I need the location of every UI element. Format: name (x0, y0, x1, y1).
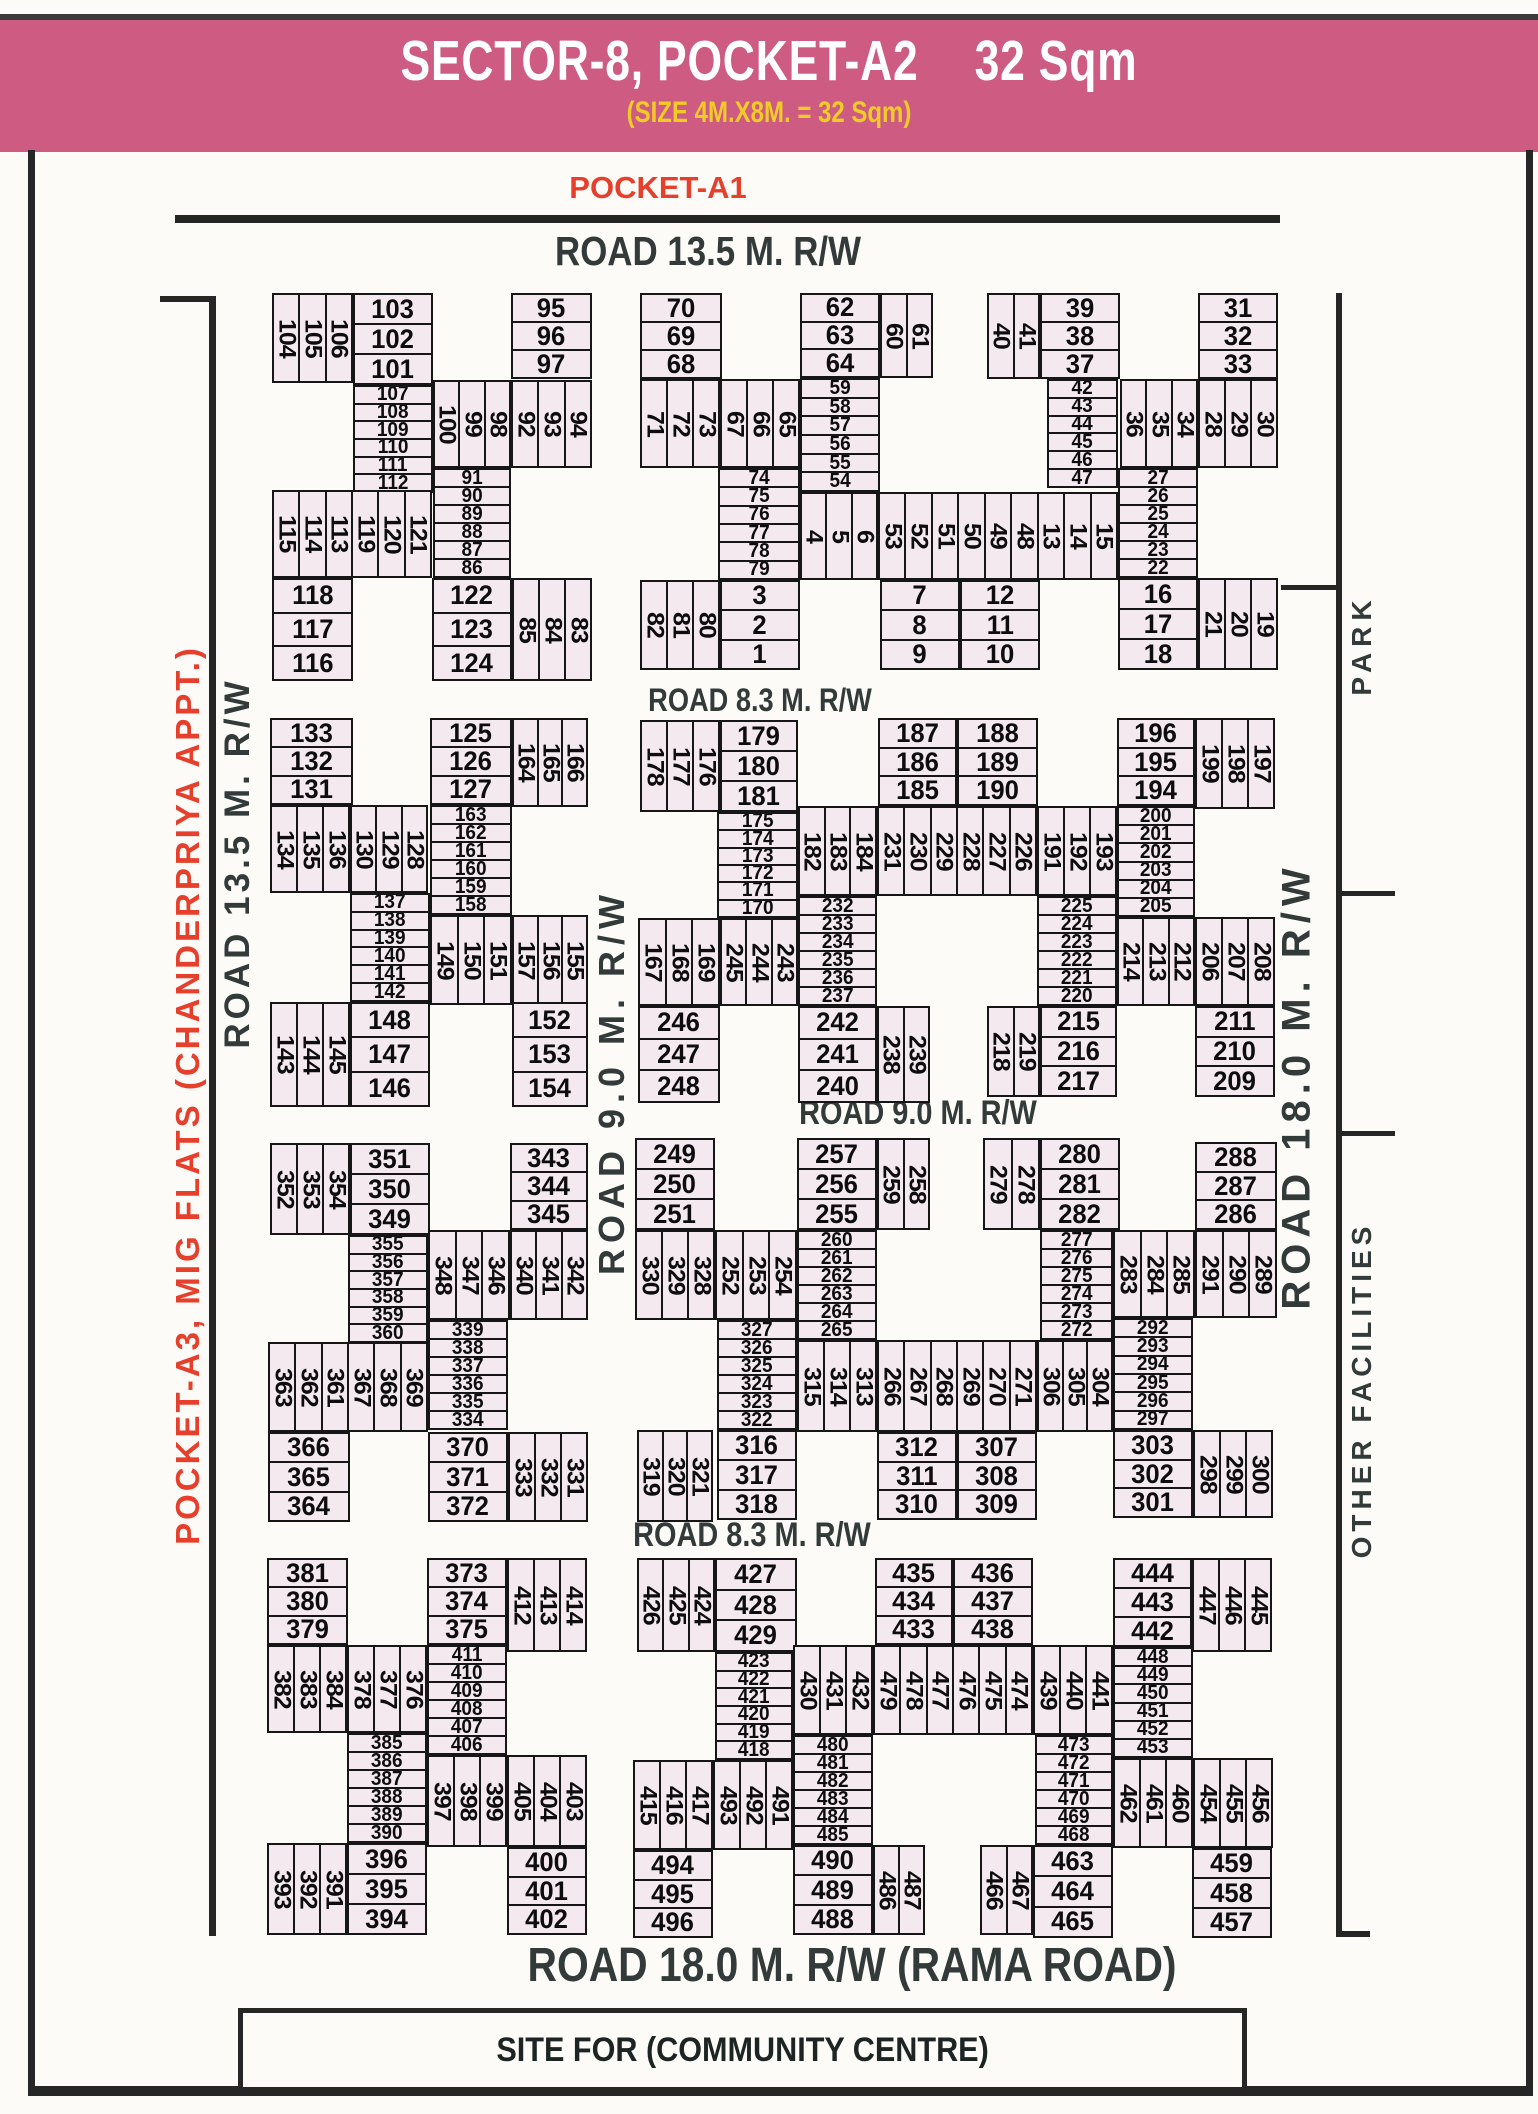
plot-number: 164 (514, 743, 537, 782)
plot-cluster: 466467 (980, 1845, 1033, 1935)
plot-cell: 385 (349, 1735, 425, 1751)
plot-cell: 337 (430, 1356, 506, 1374)
plot-number: 458 (1211, 1878, 1254, 1907)
plot-cell: 237 (800, 986, 875, 1004)
boundary-right-tick-2 (1340, 1131, 1395, 1136)
plot-number: 445 (1244, 1586, 1270, 1625)
plot-cluster: 473472471470469468 (1035, 1735, 1113, 1845)
plot-cell: 17 (1120, 608, 1196, 638)
plot-number: 148 (369, 1005, 412, 1036)
plot-number: 218 (989, 1032, 1013, 1071)
plot-number: 40 (989, 323, 1013, 349)
plot-cluster: 490489488 (793, 1845, 873, 1935)
plot-cell: 259 (879, 1140, 903, 1228)
plot-cluster: 312311310 (877, 1432, 957, 1520)
plot-cluster: 366365364 (268, 1432, 350, 1522)
plot-cell: 305 (1062, 1342, 1087, 1430)
plot-cell: 83 (564, 580, 590, 679)
plot-cell: 28 (1200, 381, 1224, 466)
plot-cell: 123 (434, 612, 510, 646)
plot-number: 276 (1061, 1248, 1093, 1266)
plot-cell: 225 (1039, 898, 1115, 914)
plot-cell: 157 (514, 917, 537, 1003)
plot-cluster: 211210209 (1195, 1006, 1275, 1097)
plot-number: 348 (430, 1256, 455, 1295)
plot-number: 434 (893, 1586, 936, 1614)
plot-number: 356 (372, 1253, 404, 1271)
plot-cell: 39 (1042, 295, 1118, 321)
plot-cluster: 919089888786 (433, 468, 511, 578)
plot-cluster: 313233 (1198, 293, 1278, 379)
plot-cell: 276 (1042, 1248, 1111, 1266)
plot-cell: 13 (1037, 494, 1063, 578)
plot-number: 411 (452, 1647, 483, 1663)
plot-number: 157 (514, 941, 537, 980)
plot-number: 14 (1064, 523, 1090, 549)
plot-cell: 90 (435, 486, 509, 504)
plot-cell: 162 (432, 823, 510, 841)
plot-cell: 442 (1115, 1616, 1190, 1645)
plot-number: 251 (654, 1199, 697, 1229)
plot-cluster: 479478477476475474 (873, 1645, 1033, 1735)
road-18-vertical-label: ROAD 18.0 M. R/W (1275, 862, 1320, 1309)
plot-number: 373 (446, 1560, 489, 1586)
plot-number: 406 (451, 1735, 483, 1753)
plot-cell: 135 (296, 807, 322, 891)
plot-cell: 423 (717, 1654, 791, 1670)
plot-cell: 266 (879, 1342, 903, 1430)
plot-number: 234 (822, 932, 854, 950)
plot-number: 294 (1137, 1355, 1169, 1373)
plot-cell: 21 (1200, 580, 1224, 668)
boundary-top-line (175, 215, 1280, 223)
plot-number: 477 (926, 1671, 952, 1710)
plot-cell: 323 (719, 1392, 795, 1410)
plot-cell: 471 (1037, 1771, 1111, 1789)
plot-number: 324 (741, 1374, 773, 1392)
plot-cell: 81 (666, 582, 692, 668)
plot-number: 170 (742, 899, 774, 916)
plot-number: 4 (802, 530, 825, 543)
plot-number: 217 (1057, 1066, 1100, 1095)
plot-cell: 408 (429, 1699, 505, 1717)
plot-cell: 251 (637, 1198, 713, 1228)
plot-cell: 98 (484, 382, 509, 466)
plot-cell: 318 (719, 1489, 795, 1518)
plot-cell: 34 (1171, 381, 1196, 466)
plot-cell: 99 (458, 382, 483, 466)
page-frame-left (28, 150, 35, 2096)
plot-cell: 488 (795, 1904, 871, 1933)
plot-number: 281 (1059, 1169, 1102, 1199)
plot-number: 86 (461, 558, 482, 576)
plot-cell: 375 (429, 1615, 505, 1643)
road-13-5-left-label: ROAD 13.5 M. R/W (218, 677, 258, 1048)
plot-number: 467 (1006, 1871, 1032, 1910)
plot-number: 387 (371, 1769, 403, 1787)
plot-number: 462 (1115, 1784, 1139, 1823)
plot-number: 187 (896, 720, 939, 747)
plot-cell: 407 (429, 1717, 505, 1735)
plot-cell: 221 (1039, 968, 1115, 986)
plot-number: 487 (898, 1871, 923, 1910)
plot-cell: 436 (955, 1560, 1031, 1586)
plot-number: 401 (526, 1876, 569, 1905)
plot-cell: 136 (322, 807, 348, 891)
plot-cell: 300 (1245, 1432, 1271, 1516)
road-13-5-top-header: ROAD 13.5 M. R/W (528, 228, 888, 275)
plot-cell: 165 (537, 720, 562, 805)
plot-cell: 371 (430, 1461, 506, 1490)
plot-number: 400 (526, 1849, 569, 1876)
plot-number: 321 (686, 1457, 711, 1496)
plot-cluster: 423422421420419418 (715, 1652, 793, 1760)
plot-number: 475 (979, 1671, 1005, 1710)
plot-cell: 177 (666, 722, 692, 810)
plot-number: 159 (455, 877, 487, 895)
plot-cell: 79 (720, 560, 798, 578)
plot-cell: 365 (270, 1461, 348, 1490)
plot-cell: 232 (800, 898, 875, 914)
plot-cell: 477 (926, 1647, 952, 1733)
plot-cluster: 279278 (983, 1138, 1040, 1230)
plot-cell: 273 (1042, 1302, 1111, 1320)
plot-number: 178 (642, 747, 666, 786)
plot-number: 73 (692, 411, 718, 437)
plot-number: 78 (748, 541, 769, 559)
plot-cell: 324 (719, 1374, 795, 1392)
plot-number: 130 (352, 830, 375, 869)
plot-cell: 85 (514, 580, 538, 679)
plot-number: 107 (377, 387, 409, 403)
plot-cell: 413 (533, 1560, 559, 1650)
plot-number: 206 (1197, 942, 1221, 981)
plot-cell: 257 (799, 1140, 875, 1168)
plot-number: 216 (1057, 1036, 1100, 1065)
plot-number: 459 (1211, 1850, 1254, 1877)
plot-number: 338 (452, 1338, 484, 1356)
plot-number: 394 (366, 1904, 409, 1934)
plot-cell: 243 (771, 920, 796, 1004)
plot-cell: 313 (849, 1342, 875, 1430)
plot-cell: 343 (512, 1145, 586, 1171)
plot-number: 219 (1013, 1032, 1039, 1071)
plot-cell: 389 (349, 1805, 425, 1823)
plot-number: 113 (325, 515, 351, 552)
plot-number: 359 (372, 1306, 404, 1324)
plot-cell: 429 (717, 1619, 795, 1650)
plot-cell: 43 (1049, 397, 1116, 415)
plot-cell: 373 (429, 1560, 505, 1586)
boundary-right-tick-1 (1340, 891, 1395, 896)
plot-cell: 168 (665, 920, 692, 1004)
plot-cell: 73 (692, 381, 718, 466)
plot-cell: 107 (355, 387, 431, 403)
plot-cell: 332 (534, 1434, 560, 1520)
plot-cluster: 161718 (1118, 578, 1198, 670)
plot-cell: 271 (1009, 1342, 1035, 1430)
plot-cluster: 411410409408407406 (427, 1645, 507, 1755)
plot-number: 198 (1221, 744, 1247, 783)
plot-cluster: 277276275274273272 (1040, 1230, 1113, 1340)
plot-number: 383 (293, 1670, 319, 1709)
plot-number: 192 (1063, 832, 1089, 871)
plot-number: 365 (288, 1462, 331, 1491)
plot-cell: 108 (355, 403, 431, 421)
plot-cell: 170 (719, 899, 796, 916)
plot-cell: 421 (717, 1687, 791, 1705)
plot-cluster: 182183184 (798, 806, 877, 896)
plot-cell: 89 (435, 504, 509, 522)
plot-number: 23 (1147, 540, 1168, 558)
plot-cluster: 929394 (511, 380, 592, 468)
plot-cell: 414 (559, 1560, 585, 1650)
plot-number: 454 (1195, 1784, 1219, 1823)
plot-cluster: 430431432 (793, 1645, 873, 1735)
plot-cell: 388 (349, 1787, 425, 1805)
plot-cell: 490 (795, 1847, 871, 1874)
plot-cluster: 858483 (512, 578, 592, 681)
plot-number: 382 (269, 1670, 293, 1709)
plot-number: 245 (722, 943, 745, 982)
plot-cell: 48 (1010, 494, 1036, 578)
plot-cell: 352 (272, 1145, 296, 1233)
plot-number: 323 (741, 1392, 773, 1410)
plot-number: 317 (736, 1460, 779, 1489)
plot-cluster: 196195194 (1117, 718, 1195, 806)
plot-number: 421 (738, 1687, 770, 1705)
plot-cell: 333 (510, 1434, 534, 1520)
plot-cell: 100 (435, 382, 458, 466)
plot-cell: 261 (799, 1248, 875, 1266)
boundary-right-bottom-tick (1336, 1931, 1370, 1937)
plot-cell: 438 (955, 1615, 1031, 1643)
plot-number: 195 (1135, 747, 1178, 776)
plot-number: 450 (1137, 1683, 1169, 1701)
plot-number: 1 (753, 639, 767, 668)
plot-cell: 236 (800, 968, 875, 986)
plot-cell: 140 (352, 946, 428, 964)
plot-number: 368 (374, 1368, 400, 1407)
plot-cluster: 118117116 (272, 578, 353, 681)
plot-cluster: 187186185 (878, 718, 957, 806)
plot-number: 122 (451, 580, 494, 611)
plot-number: 436 (972, 1560, 1015, 1586)
plot-number: 42 (1072, 381, 1093, 397)
plot-cell: 292 (1115, 1320, 1191, 1336)
plot-number: 302 (1132, 1459, 1175, 1488)
plot-cell: 219 (1013, 1008, 1039, 1095)
plot-number: 92 (513, 411, 537, 437)
plot-number: 133 (290, 720, 333, 746)
plot-cell: 399 (479, 1757, 505, 1845)
plot-number: 100 (435, 405, 458, 444)
plot-cell: 104 (274, 295, 298, 381)
plot-cell: 141 (352, 964, 428, 982)
plot-number: 379 (286, 1615, 329, 1643)
plot-cell: 330 (637, 1232, 661, 1318)
plot-cell: 362 (294, 1344, 320, 1430)
plot-number: 478 (900, 1671, 926, 1710)
plot-number: 343 (528, 1145, 571, 1171)
plot-number: 342 (561, 1256, 586, 1295)
plot-number: 150 (457, 941, 483, 980)
plot-cluster: 199198197 (1195, 718, 1275, 809)
plot-cluster: 676665 (720, 379, 800, 468)
plot-cell: 67 (722, 381, 746, 466)
plot-cell: 356 (350, 1253, 426, 1271)
plot-number: 391 (319, 1870, 345, 1909)
plot-cell: 54 (802, 471, 878, 490)
plot-cell: 36 (1122, 381, 1145, 466)
page-frame-right (1526, 150, 1533, 2096)
plot-cell: 181 (722, 780, 796, 810)
plot-number: 244 (745, 943, 770, 982)
plot-cell: 164 (514, 720, 537, 805)
plot-number: 93 (538, 411, 564, 437)
plot-cell: 312 (879, 1434, 955, 1461)
plot-cell: 462 (1115, 1760, 1139, 1846)
plot-cell: 307 (959, 1434, 1035, 1461)
plot-number: 152 (529, 1005, 572, 1036)
plot-number: 371 (447, 1462, 490, 1491)
plot-number: 64 (826, 348, 855, 376)
plot-number: 235 (822, 950, 854, 968)
plot-cell: 391 (319, 1845, 345, 1933)
plot-cell: 377 (373, 1647, 399, 1731)
plot-number: 490 (812, 1847, 855, 1874)
plot-cell: 58 (802, 397, 878, 416)
plot-cell: 158 (432, 895, 510, 913)
plot-cell: 55 (802, 453, 878, 472)
plot-number: 357 (372, 1270, 404, 1288)
plot-cluster: 215216217 (1040, 1006, 1117, 1097)
plot-number: 444 (1131, 1560, 1174, 1587)
plot-cell: 467 (1006, 1847, 1032, 1933)
plot-number: 137 (374, 895, 406, 911)
plot-number: 222 (1061, 950, 1093, 968)
plot-cell: 368 (373, 1344, 399, 1430)
plot-number: 291 (1197, 1255, 1222, 1294)
plot-number: 410 (451, 1663, 483, 1681)
plot-number: 480 (817, 1737, 849, 1753)
plot-number: 380 (286, 1586, 329, 1614)
plot-number: 82 (642, 612, 666, 638)
plot-cell: 133 (272, 720, 351, 746)
plot-number: 46 (1072, 450, 1093, 468)
plot-number: 339 (452, 1322, 484, 1338)
plot-number: 273 (1061, 1302, 1093, 1320)
plot-cluster: 493492491 (713, 1760, 793, 1850)
plot-number: 80 (692, 612, 718, 638)
plot-number: 10 (986, 639, 1015, 668)
plot-cell: 256 (799, 1168, 875, 1198)
plot-cell: 101 (355, 353, 431, 383)
plot-cell: 425 (662, 1560, 687, 1650)
plot-cell: 96 (513, 321, 590, 349)
plot-cell: 492 (739, 1762, 765, 1848)
plot-number: 315 (799, 1367, 823, 1406)
plot-number: 438 (972, 1615, 1015, 1643)
plot-cluster: 348347346 (428, 1230, 510, 1320)
plot-number: 424 (688, 1586, 713, 1625)
plot-cell: 2 (722, 609, 798, 638)
plot-cluster: 212019 (1198, 578, 1278, 670)
plot-number: 308 (976, 1461, 1019, 1490)
plot-cell: 411 (429, 1647, 505, 1663)
plot-number: 280 (1059, 1140, 1102, 1168)
plot-number: 377 (373, 1670, 399, 1709)
plot-cluster: 319320321 (637, 1430, 713, 1522)
plot-cell: 8 (882, 609, 958, 638)
plot-cell: 284 (1140, 1232, 1167, 1316)
plot-number: 65 (772, 411, 798, 437)
plot-number: 405 (509, 1782, 533, 1821)
plot-number: 17 (1144, 609, 1173, 639)
area-label: 32 Sqm (975, 29, 1138, 93)
plot-cell: 178 (642, 722, 666, 810)
plot-cell: 126 (432, 746, 510, 774)
plot-cell: 216 (1042, 1036, 1115, 1066)
plot-cluster: 232233234235236237 (798, 896, 877, 1006)
plot-cluster: 444443442 (1113, 1558, 1192, 1647)
plot-cluster: 327326325324323322 (717, 1320, 797, 1430)
plot-number: 419 (738, 1723, 770, 1741)
plot-cell: 424 (688, 1560, 713, 1650)
plot-number: 346 (482, 1256, 508, 1295)
plot-number: 110 (378, 438, 409, 456)
plot-number: 397 (429, 1782, 453, 1821)
plot-number: 177 (666, 747, 692, 786)
plot-number: 5 (825, 530, 850, 543)
plot-number: 114 (299, 515, 325, 552)
plot-cell: 169 (691, 920, 718, 1004)
plot-cell: 306 (1039, 1342, 1062, 1430)
plot-cell: 156 (537, 917, 562, 1003)
plot-number: 227 (983, 832, 1009, 871)
plot-cell: 230 (903, 808, 929, 894)
plot-cell: 87 (435, 540, 509, 558)
plot-number: 248 (658, 1071, 701, 1101)
plot-cell: 115 (274, 492, 298, 576)
plot-cell: 461 (1139, 1760, 1165, 1846)
plot-number: 215 (1057, 1008, 1100, 1036)
plot-number: 292 (1137, 1320, 1169, 1336)
road-rama-header: ROAD 18.0 M. R/W (RAMA ROAD) (470, 1938, 1234, 1993)
plot-cluster: 447446445 (1192, 1558, 1272, 1652)
plot-number: 213 (1142, 942, 1167, 981)
plot-cell: 202 (1119, 842, 1193, 860)
plot-number: 460 (1165, 1784, 1191, 1823)
plot-number: 350 (369, 1174, 412, 1204)
plot-cluster: 260261262263264265 (797, 1230, 877, 1340)
plot-cell: 226 (1009, 808, 1035, 894)
plot-number: 34 (1171, 411, 1196, 437)
plot-cell: 103 (355, 295, 431, 323)
plot-number: 448 (1137, 1649, 1169, 1665)
plot-cell: 341 (535, 1232, 560, 1318)
plot-number: 320 (662, 1457, 687, 1496)
plot-cell: 296 (1115, 1391, 1191, 1409)
plot-number: 349 (369, 1204, 412, 1234)
plot-number: 457 (1211, 1907, 1254, 1936)
plot-cell: 207 (1221, 919, 1247, 1004)
plot-number: 63 (826, 321, 855, 349)
plot-number: 485 (817, 1825, 849, 1843)
plot-cluster: 424344454647 (1047, 379, 1118, 488)
plot-cell: 459 (1194, 1850, 1270, 1877)
plot-cell: 293 (1115, 1336, 1191, 1354)
